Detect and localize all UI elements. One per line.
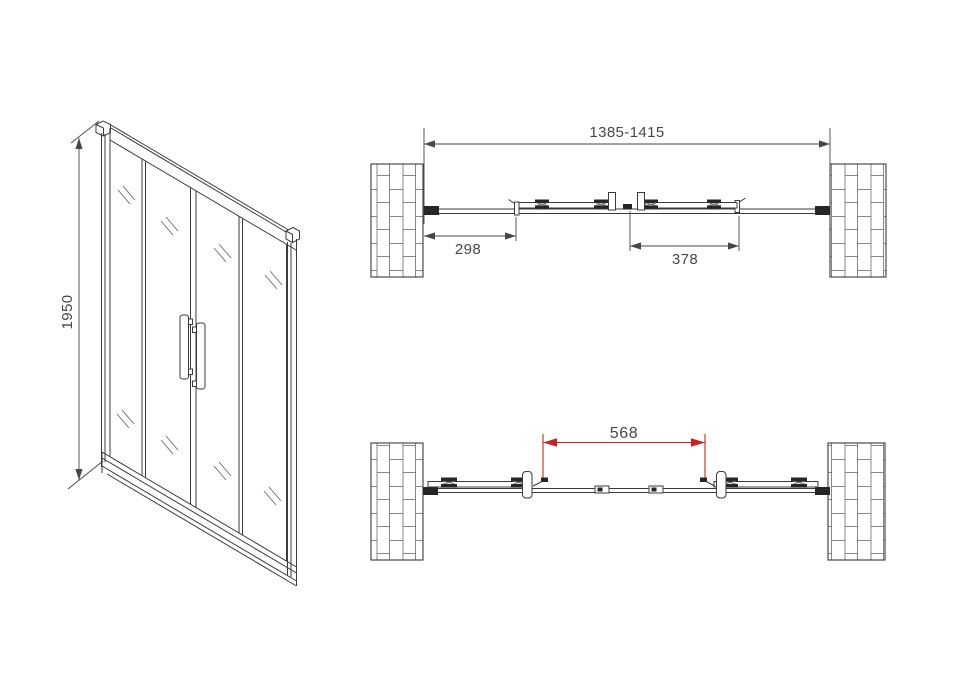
- left-door-handle: [609, 193, 616, 211]
- right-door-panel: [645, 203, 737, 209]
- wall-bracket: [423, 487, 438, 495]
- right-door-handle: [638, 193, 645, 211]
- drawing-canvas: 1950: [0, 0, 970, 686]
- front-elevation-view: 1950: [59, 121, 300, 586]
- right-wall: [828, 443, 885, 560]
- left-door-open: [428, 472, 548, 499]
- opening-label: 568: [610, 425, 639, 442]
- sliding-doors-closed: [519, 193, 737, 211]
- right-door-open: [700, 472, 818, 499]
- right-door-handle: [717, 472, 727, 499]
- arrow-up: [75, 138, 82, 149]
- arrow-left: [424, 140, 435, 147]
- door-stopper: [700, 478, 707, 483]
- plan-view-open: 568: [371, 425, 885, 560]
- left-wall: [371, 164, 423, 277]
- right-panel-label: 378: [672, 251, 698, 268]
- height-dimension-label: 1950: [59, 295, 76, 330]
- left-wall: [371, 443, 423, 560]
- arrow-right: [819, 140, 830, 147]
- arrow-right: [505, 232, 516, 239]
- door-stopper: [541, 478, 548, 483]
- height-dimension: 1950: [59, 121, 103, 489]
- left-door-handle: [523, 472, 533, 499]
- center-magnet-strip: [623, 204, 632, 210]
- bottom-track: [423, 487, 830, 495]
- arrow-left: [543, 438, 557, 446]
- technical-drawing: 1950: [0, 0, 970, 686]
- wall-bracket: [815, 206, 830, 215]
- opening-dimension: 568: [543, 425, 705, 478]
- overall-width-label: 1385-1415: [589, 124, 664, 141]
- arrow-left: [424, 232, 435, 239]
- wall-bracket: [815, 487, 830, 495]
- arrow-right: [691, 438, 705, 446]
- wall-bracket: [424, 206, 439, 215]
- left-panel-label: 298: [455, 241, 481, 258]
- right-wall: [830, 164, 886, 277]
- arrow-left: [630, 242, 641, 249]
- left-panel-dimension: 298: [424, 217, 516, 258]
- right-handle-bar: [197, 323, 206, 389]
- left-handle-bar: [180, 315, 189, 379]
- right-panel-dimension: 378: [630, 211, 739, 268]
- door-handles: [180, 315, 205, 389]
- glass-clips: [595, 486, 663, 493]
- plan-view-closed: 1385-1415: [371, 124, 886, 277]
- arrow-right: [728, 242, 739, 249]
